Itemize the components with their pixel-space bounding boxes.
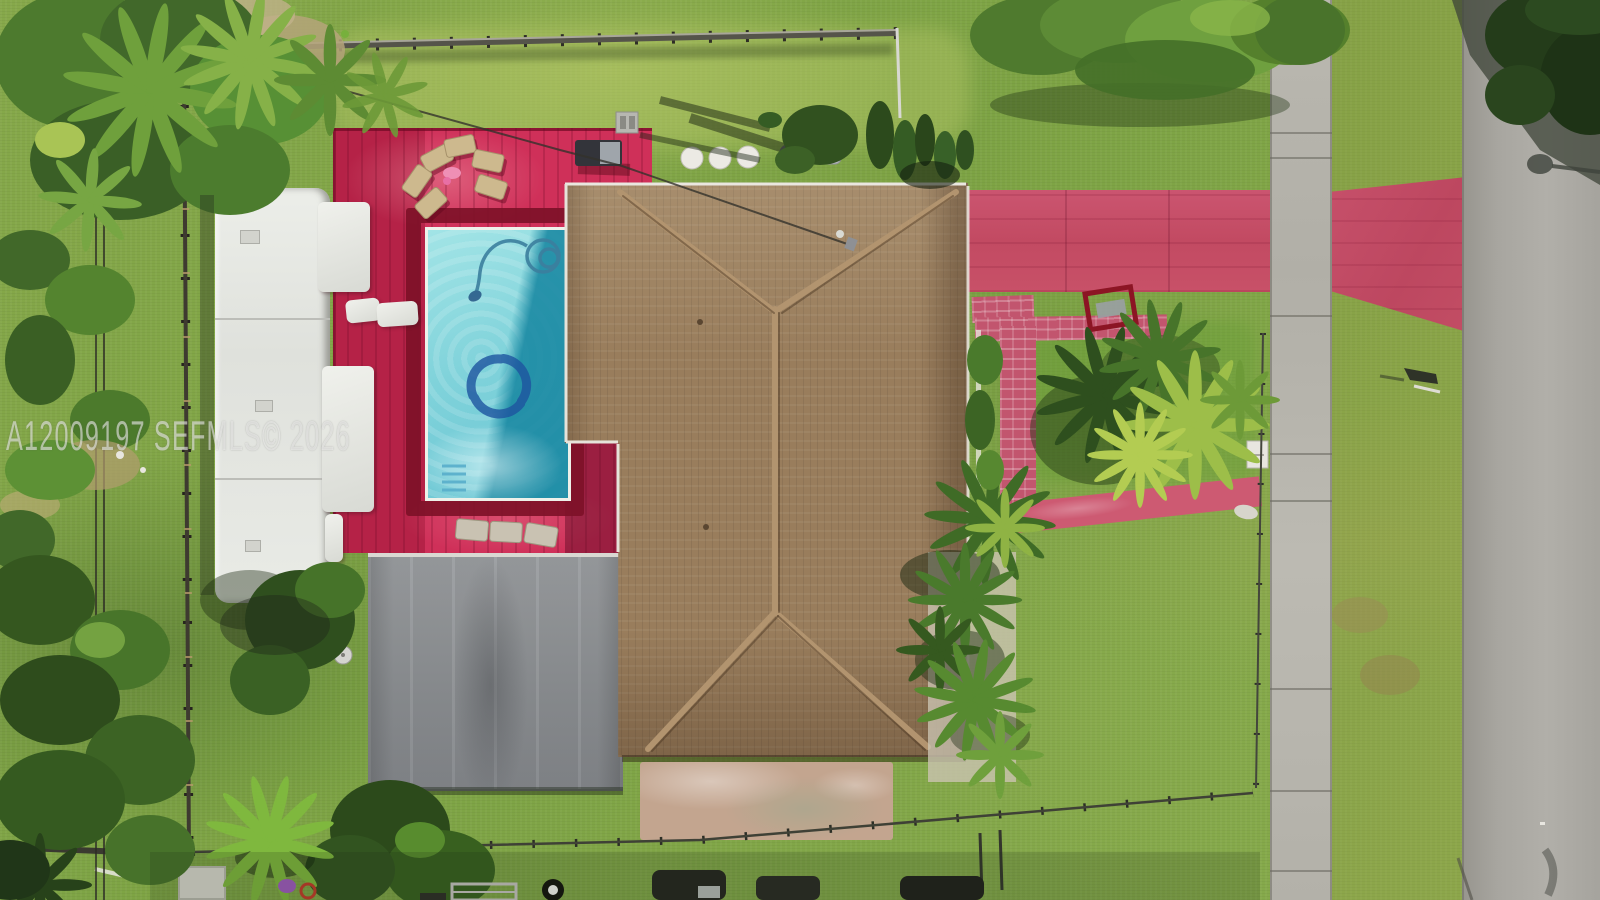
brick-path-vertical [1000, 326, 1036, 510]
sidewalk-joint [1270, 688, 1332, 690]
deck-board [345, 297, 381, 323]
sidewalk-joint [1270, 132, 1332, 134]
sidewalk-joint [1270, 870, 1332, 872]
sidewalk-joint [1270, 500, 1332, 502]
rv-vent [255, 400, 273, 412]
sidewalk [1270, 0, 1332, 900]
neighbor-shed-gray [374, 841, 400, 875]
patio-slab [640, 762, 893, 840]
neighbor-shed-white [178, 866, 226, 900]
mls-watermark: A12009197 SEFMLS© 2026 [6, 412, 351, 460]
sidewalk-joint [1270, 790, 1332, 792]
rv-seam [215, 478, 330, 480]
grass-verge [1332, 0, 1462, 900]
house-roof [565, 183, 968, 757]
rv-seam [215, 318, 330, 320]
deck-board [376, 301, 419, 328]
storage-box [318, 202, 370, 292]
rv-trailer [215, 188, 330, 603]
sidewalk-joint [1270, 157, 1332, 159]
rv-vent [245, 540, 261, 552]
aerial-photo: A12009197 SEFMLS© 2026 [0, 0, 1600, 900]
front-lawn-square [1028, 322, 1256, 482]
storage-box-small [325, 514, 343, 562]
sidewalk-joint [1270, 453, 1332, 455]
flat-carport-roof [368, 553, 623, 791]
swimming-pool [425, 227, 571, 501]
road [1462, 0, 1600, 900]
sidewalk-joint [1270, 315, 1332, 317]
rv-vent [240, 230, 260, 244]
driveway [962, 190, 1270, 292]
